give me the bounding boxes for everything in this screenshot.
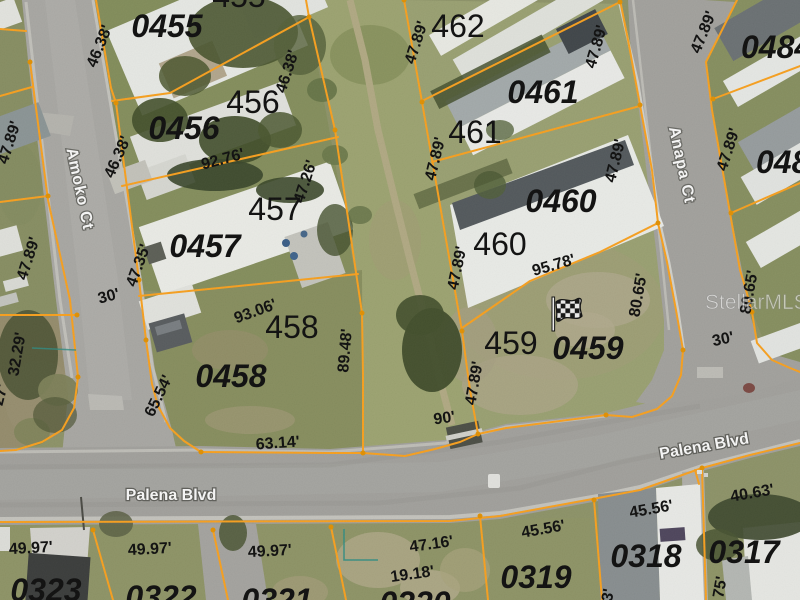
svg-text:StellarMLS: StellarMLS <box>705 291 800 314</box>
